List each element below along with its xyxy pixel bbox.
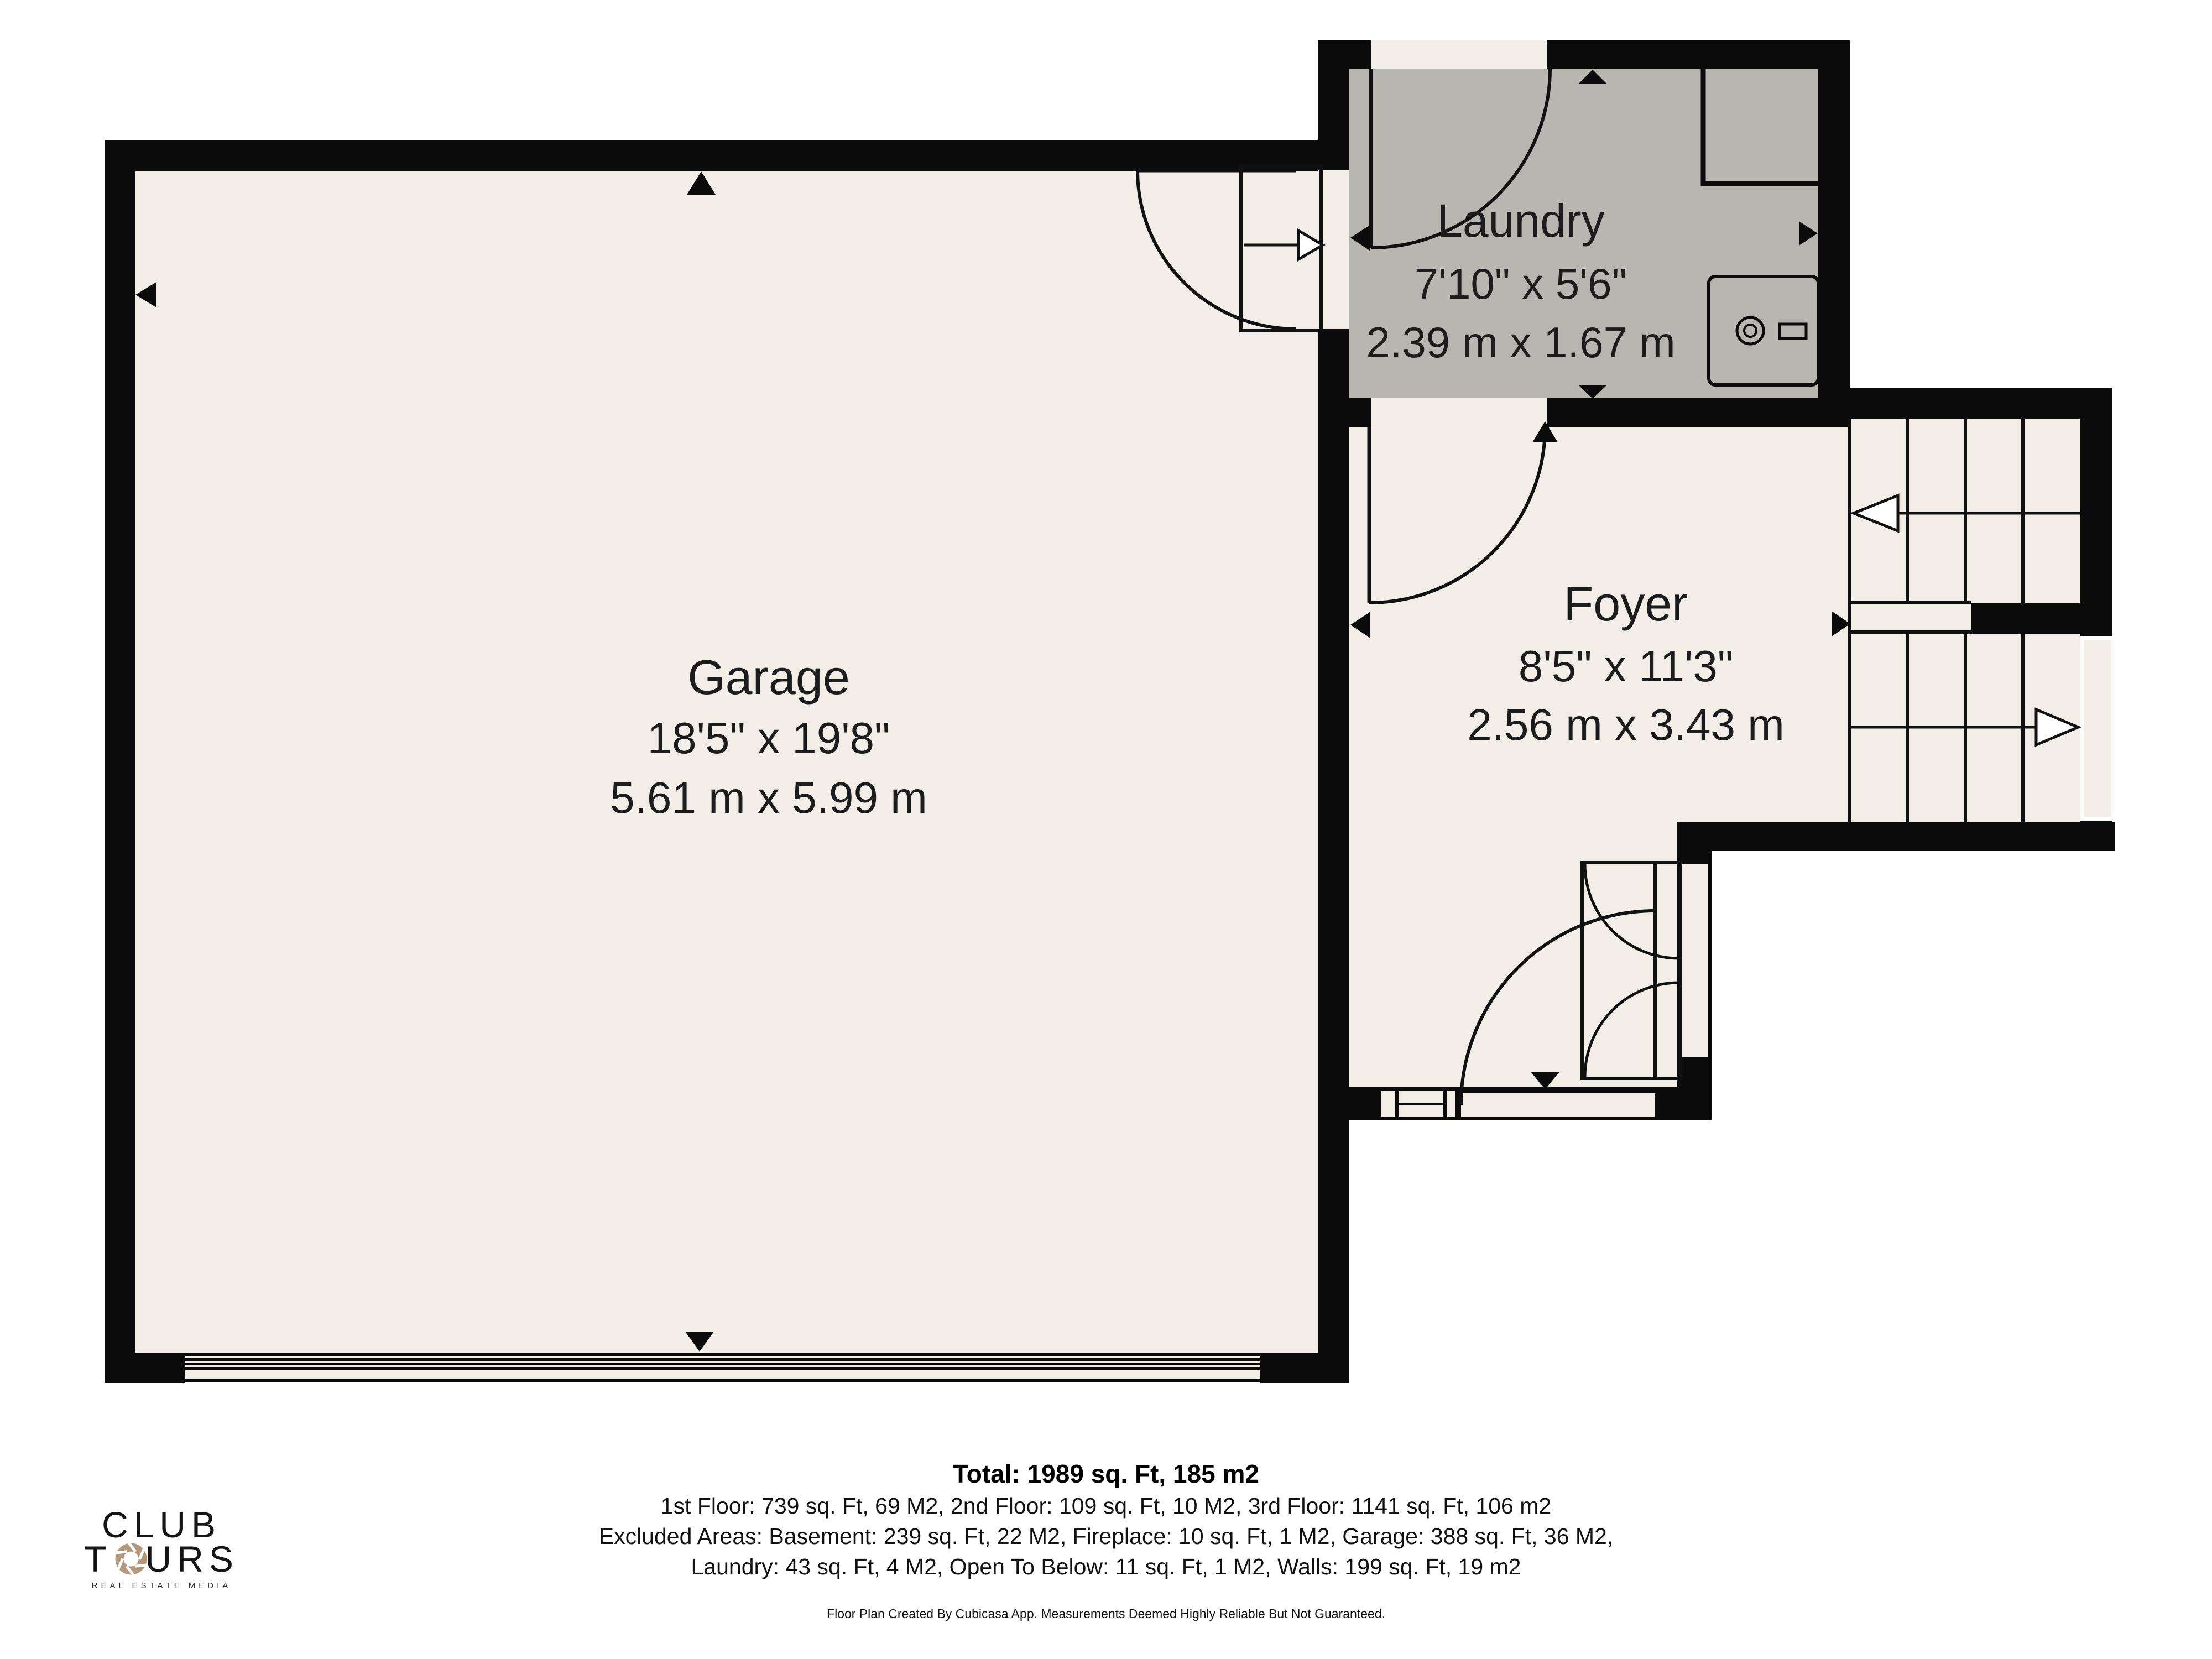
foyer-metric: 2.56 m x 3.43 m — [1467, 700, 1785, 749]
laundry-foyer-opening — [1371, 398, 1547, 427]
excluded-areas-text-2: Laundry: 43 sq. Ft, 4 M2, Open To Below:… — [691, 1554, 1521, 1579]
foyer-label: Foyer — [1564, 576, 1688, 631]
foyer-side-window — [1681, 864, 1708, 1057]
garage-door-line — [185, 1379, 1260, 1382]
floor-plan-drawing: Garage 18'5" x 19'8" 5.61 m x 5.99 m Lau… — [0, 0, 2212, 1659]
floor-areas — [135, 69, 2080, 1353]
laundry-imperial: 7'10" x 5'6" — [1415, 259, 1627, 308]
summary-block: Total: 1989 sq. Ft, 185 m2 1st Floor: 73… — [599, 1459, 1614, 1621]
garage-door-line — [185, 1367, 1260, 1370]
excluded-areas-text-1: Excluded Areas: Basement: 239 sq. Ft, 22… — [599, 1524, 1614, 1549]
laundry-entry-opening — [1371, 40, 1547, 69]
washer-icon — [1709, 276, 1818, 385]
garage-bottom-left-corner — [105, 1353, 185, 1383]
garage-top-wall — [105, 140, 1349, 171]
garage-imperial: 18'5" x 19'8" — [648, 713, 890, 763]
stair-exterior-door — [2084, 640, 2111, 817]
garage-door-line — [185, 1358, 1260, 1361]
stair-landing-wall-stub — [1971, 603, 2080, 634]
total-area-text: Total: 1989 sq. Ft, 185 m2 — [953, 1459, 1259, 1488]
logo-t: T — [84, 1538, 111, 1579]
garage-label: Garage — [687, 650, 850, 705]
window-mullion-left — [1395, 1091, 1399, 1117]
garage-metric: 5.61 m x 5.99 m — [610, 773, 927, 822]
stairwell-top-wall — [1850, 388, 2112, 419]
garage-bottom-right-corner — [1260, 1353, 1349, 1383]
laundry-label: Laundry — [1437, 195, 1605, 247]
laundry-metric: 2.39 m x 1.67 m — [1366, 318, 1675, 367]
window-mullion-right — [1443, 1091, 1447, 1117]
garage-left-wall — [105, 140, 135, 1383]
logo-tagline: REAL ESTATE MEDIA — [92, 1581, 232, 1590]
window-mullion-center — [1399, 1103, 1443, 1105]
stairwell-bottom-wall — [1677, 822, 2115, 851]
garage-door-line — [185, 1363, 1260, 1365]
laundry-right-wall — [1818, 40, 1850, 419]
floor-plan-page: Garage 18'5" x 19'8" 5.61 m x 5.99 m Lau… — [0, 0, 2212, 1659]
garage-door — [185, 1353, 1260, 1382]
logo-urs: URS — [145, 1538, 239, 1579]
logo-line2: TOURS — [84, 1538, 239, 1579]
disclaimer-text: Floor Plan Created By Cubicasa App. Meas… — [827, 1606, 1385, 1621]
foyer-imperial: 8'5" x 11'3" — [1519, 641, 1733, 691]
club-tours-logo: CLUB TOURS REAL ESTATE MEDIA — [84, 1504, 239, 1590]
front-door-opening — [1461, 1093, 1655, 1117]
floors-area-text: 1st Floor: 739 sq. Ft, 69 M2, 2nd Floor:… — [661, 1493, 1551, 1519]
garage-door-line — [185, 1353, 1260, 1356]
